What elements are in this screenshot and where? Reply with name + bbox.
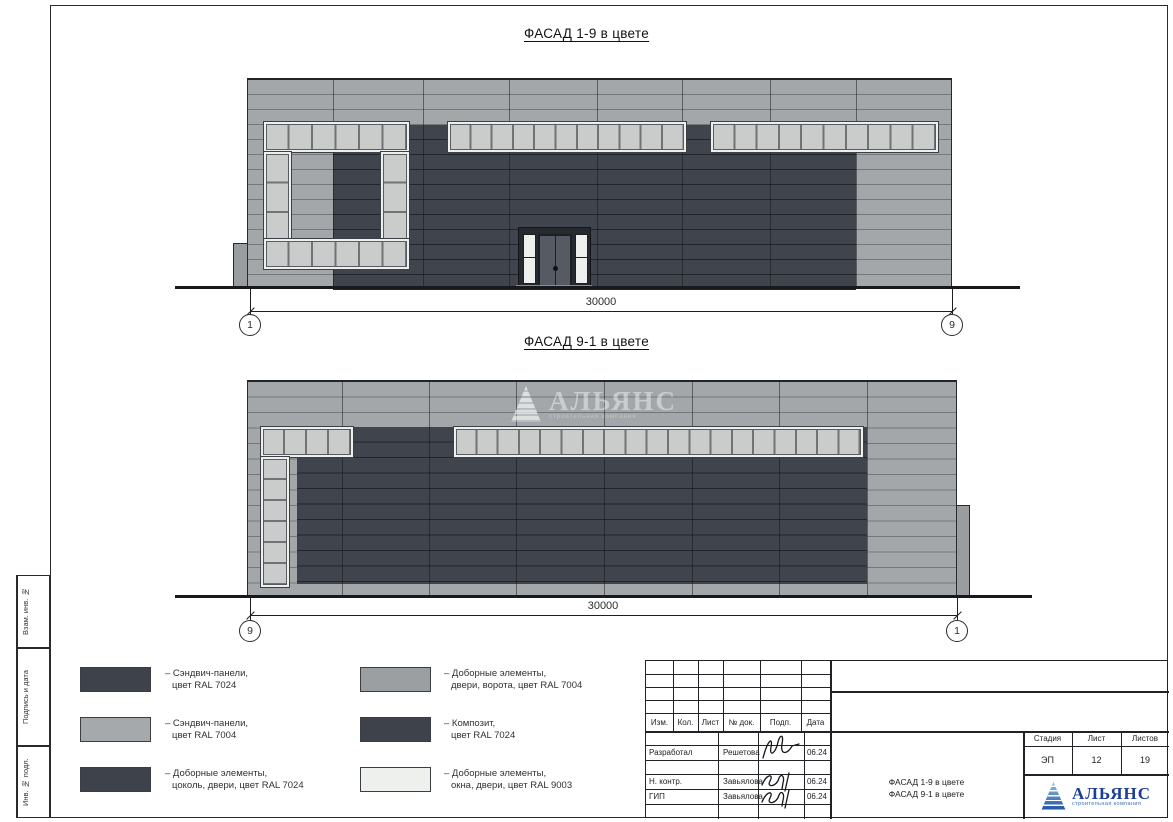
dimension-label: 30000 xyxy=(588,600,619,612)
window-band-top-left xyxy=(261,427,353,457)
margin-stamp-label: Инв. № подл. xyxy=(17,747,33,817)
legend-item: – Доборные элементы,двери, ворота, цвет … xyxy=(360,667,582,692)
dimension-line xyxy=(250,615,957,616)
tb-stage-col: Лист xyxy=(1072,731,1121,746)
logo-triangle-icon xyxy=(1041,782,1066,811)
tb-name: Решетова xyxy=(720,745,758,760)
legend-item: – Сэндвич-панели,цвет RAL 7004 xyxy=(80,717,248,742)
entrance-portal xyxy=(518,227,591,289)
tb-sheet-name: ФАСАД 1-9 в цвете ФАСАД 9-1 в цвете xyxy=(830,731,1023,819)
panel-seam xyxy=(770,80,771,287)
panel-seam xyxy=(342,382,343,596)
tb-col-izm: Изм. xyxy=(646,713,673,731)
tb-col-data: Дата xyxy=(801,713,830,731)
margin-stamp-cell: Взам. инв. № xyxy=(16,575,50,648)
panel-seam xyxy=(856,80,857,287)
legend-label: – Сэндвич-панели,цвет RAL 7004 xyxy=(165,718,248,742)
tb-date: 06.24 xyxy=(804,789,830,804)
tb-stage-col: Стадия xyxy=(1023,731,1072,746)
margin-stamp-cell: Инв. № подл. xyxy=(16,746,50,818)
facade-top-title: ФАСАД 1-9 в цвете xyxy=(0,26,1173,41)
panel-seam xyxy=(423,80,424,287)
tb-date: 06.24 xyxy=(804,745,830,760)
grid-axis-bubble: 9 xyxy=(239,620,261,642)
tb-col-ndok: № док. xyxy=(723,713,760,731)
entrance-sidelight-left xyxy=(523,234,536,284)
side-annex-right xyxy=(956,505,970,597)
legend-item: – Доборные элементы,цоколь, двери, цвет … xyxy=(80,767,304,792)
window-band-top-left xyxy=(264,122,409,152)
window-band-bottom-left xyxy=(264,239,409,269)
color-swatch xyxy=(80,717,151,742)
tb-stage-col: Листов xyxy=(1121,731,1169,746)
color-swatch xyxy=(80,667,151,692)
legend-label: – Доборные элементы,цоколь, двери, цвет … xyxy=(165,768,304,792)
grid-axis-bubble: 1 xyxy=(239,314,261,336)
panel-seam xyxy=(509,80,510,287)
title-block: Изм. Кол. Лист № док. Подп. Дата Разрабо… xyxy=(645,660,1168,818)
tb-role: ГИП xyxy=(646,789,718,804)
tb-stage-value: ЭП xyxy=(1023,746,1072,774)
grid-axis-bubble: 1 xyxy=(946,620,968,642)
tb-col-list: Лист xyxy=(698,713,723,731)
logo-subtext: строительная компания xyxy=(1072,801,1151,807)
ground-line xyxy=(175,595,1032,598)
legend-item: – Сэндвич-панели,цвет RAL 7024 xyxy=(80,667,248,692)
facade-bottom-title: ФАСАД 9-1 в цвете xyxy=(0,334,1173,349)
window-column-left xyxy=(264,152,291,245)
legend-label: – Сэндвич-панели,цвет RAL 7024 xyxy=(165,668,248,692)
panel-seam xyxy=(597,80,598,287)
company-watermark: АЛЬЯНС строительная компания xyxy=(511,386,677,422)
color-swatch xyxy=(80,767,151,792)
margin-stamp-label: Взам. инв. № xyxy=(17,576,33,647)
tb-sheet-number: 12 xyxy=(1072,746,1121,774)
facade-1-9-elevation xyxy=(247,78,952,288)
side-annex-left xyxy=(233,243,248,288)
entrance-double-door xyxy=(538,234,572,289)
tb-name: Завьялова xyxy=(720,774,758,789)
window-band-long xyxy=(454,427,863,457)
color-swatch xyxy=(360,667,431,692)
window-band-right xyxy=(711,122,938,152)
tb-role: Разработал xyxy=(646,745,718,760)
tb-col-podp: Подп. xyxy=(760,713,801,731)
panel-seam xyxy=(779,382,780,596)
panel-seam xyxy=(429,382,430,596)
tb-date: 06.24 xyxy=(804,774,830,789)
tb-col-kol: Кол. xyxy=(673,713,698,731)
window-band-center xyxy=(448,122,686,152)
legend-label: – Доборные элементы,окна, двери, цвет RA… xyxy=(444,768,572,792)
margin-stamp-label: Подпись и дата xyxy=(17,649,33,745)
dimension-line xyxy=(250,311,952,312)
panel-seam xyxy=(867,382,868,596)
margin-stamp-cell: Подпись и дата xyxy=(16,648,50,746)
facade-9-1-elevation: АЛЬЯНС строительная компания xyxy=(247,380,957,597)
tb-sheet-count: 19 xyxy=(1121,746,1169,774)
ground-line xyxy=(175,286,1020,289)
window-column-right xyxy=(381,152,409,245)
legend-item: – Доборные элементы,окна, двери, цвет RA… xyxy=(360,767,572,792)
tb-name: Завьялова xyxy=(720,789,758,804)
watermark-text: АЛЬЯНС xyxy=(549,388,677,414)
signature xyxy=(758,731,804,763)
entrance-sidelight-right xyxy=(575,234,588,284)
panel-seam xyxy=(516,382,517,596)
company-logo: АЛЬЯНС строительная компания xyxy=(1023,774,1169,819)
color-swatch xyxy=(360,717,431,742)
watermark-subtext: строительная компания xyxy=(549,414,677,420)
grid-axis-bubble: 9 xyxy=(941,314,963,336)
signature xyxy=(758,785,804,811)
panel-seam xyxy=(692,382,693,596)
panel-seam xyxy=(682,80,683,287)
dimension-label: 30000 xyxy=(586,296,617,308)
drawing-sheet: ФАСАД 1-9 в цвете 30000 1 9 ФАСАД 9-1 в … xyxy=(0,0,1173,822)
color-swatch xyxy=(360,767,431,792)
tb-role: Н. контр. xyxy=(646,774,718,789)
logo-text: АЛЬЯНС xyxy=(1072,786,1151,801)
legend-item: – Композит,цвет RAL 7024 xyxy=(360,717,515,742)
legend-label: – Композит,цвет RAL 7024 xyxy=(444,718,515,742)
legend-label: – Доборные элементы,двери, ворота, цвет … xyxy=(444,668,582,692)
window-column-left xyxy=(261,457,289,587)
door-handle-icon xyxy=(553,266,558,271)
panel-seam xyxy=(604,382,605,596)
